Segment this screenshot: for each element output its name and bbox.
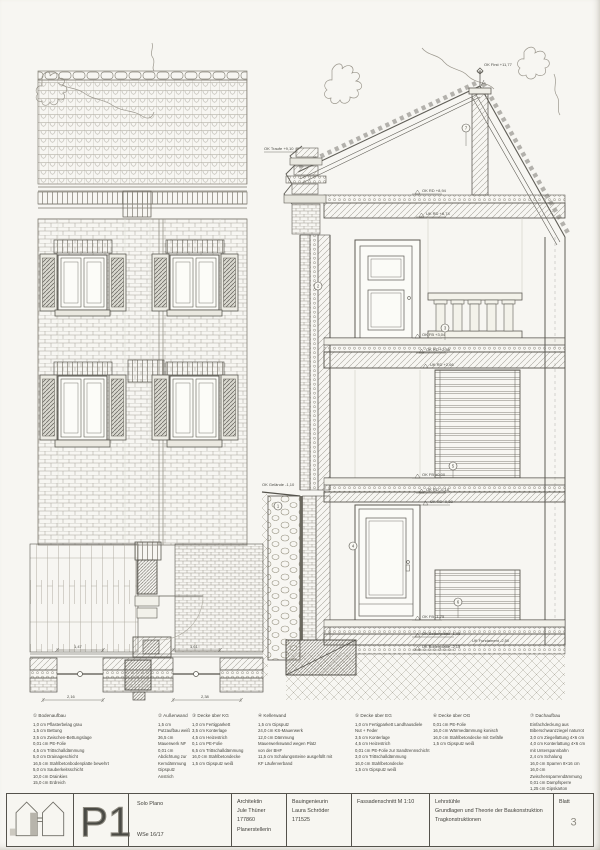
rubble-wall: [268, 496, 300, 660]
waterproofing: [300, 496, 303, 640]
svg-text:OK Traufe +9,10: OK Traufe +9,10: [264, 146, 294, 151]
slatted-window: [435, 570, 520, 625]
drawing-title-cell: Fassadenschnitt M 1:10: [351, 794, 429, 846]
sheet-label: Blatt: [559, 799, 570, 805]
legend-circled-number: ②: [158, 713, 162, 718]
svg-text:UK RD +8,74: UK RD +8,74: [426, 211, 450, 216]
panel-door: [355, 240, 420, 338]
legend-column-title: Decke über OG: [438, 713, 470, 718]
legend-column-title: Außenwand: [163, 713, 188, 718]
legend-column-1: ① Bodenaufbau 1,0 cm Pflasterbelag grau …: [33, 713, 151, 786]
project-name: Solo Plano: [137, 800, 223, 809]
project-code: P1: [80, 798, 131, 845]
tree-sketch: [324, 47, 560, 115]
sheet-number: 3: [570, 813, 576, 832]
svg-text:OK RD +8,94: OK RD +8,94: [422, 188, 447, 193]
svg-text:2,16: 2,16: [67, 694, 76, 699]
legend-column-title: Bodenaufbau: [38, 713, 65, 718]
chimney: [472, 94, 488, 195]
legend-column-3: ③ Decke über KG 1,0 cm Fertigparkett 3,5…: [192, 713, 254, 767]
svg-text:UK RD -0,38: UK RD -0,38: [430, 499, 453, 504]
legend-rows: 1,0 cm Pflasterbelag grau 1,5 cm Bettung…: [33, 722, 151, 786]
svg-text:1,61: 1,61: [190, 644, 199, 649]
legend-column-title: Kellerwand: [263, 713, 286, 718]
svg-text:OK FB +3,04: OK FB +3,04: [422, 332, 446, 337]
right-wall-edge: [545, 237, 565, 645]
svg-text:OK First +11,77: OK First +11,77: [484, 62, 513, 67]
legend-column-4: ④ Kellerwand 1,5 cm Gipsputz 24,0 cm KS-…: [258, 713, 353, 767]
project-name-cell: Solo Plano WSe 16/17: [128, 794, 231, 846]
legend-circled-number: ⑦: [530, 713, 534, 718]
project-code-cell: P1: [73, 794, 128, 846]
legend-rows: 1,5 cm Gipsputz 24,0 cm KS-Mauerwerk 12,…: [258, 722, 353, 767]
window: [152, 362, 238, 447]
glazed-door: [355, 505, 420, 620]
legend-rows: 1,5 cm Putzaufbau weiß 36,5 cm Mauerwerk…: [158, 722, 191, 780]
masonry-pier: [220, 658, 263, 692]
svg-text:OK Gelände -1,10: OK Gelände -1,10: [262, 482, 295, 487]
title-block-logo-cell: [7, 794, 73, 846]
svg-text:OK RD -0,18: OK RD -0,18: [426, 487, 450, 492]
svg-text:OK Bodenplatte -1,95: OK Bodenplatte -1,95: [422, 631, 461, 636]
layer-legend: ① Bodenaufbau 1,0 cm Pflasterbelag grau …: [0, 713, 600, 793]
svg-text:1,47: 1,47: [74, 644, 83, 649]
facade-roof-tiles: [38, 71, 247, 184]
detail-section-strip: [30, 654, 263, 700]
engineer-cell: Bauingenieurin Laura Schröder 171525: [286, 794, 351, 846]
brick-paving: [175, 544, 263, 652]
legend-rows: 1,0 cm Fertigparkett 3,5 cm Konterlage 4…: [192, 722, 254, 767]
legend-rows: 1,0 cm Fertigparkett Landhausdiele Nut +…: [355, 722, 430, 774]
legend-circled-number: ⑤: [355, 713, 359, 718]
legend-circled-number: ③: [192, 713, 196, 718]
window: [40, 362, 126, 447]
eave-cornice-detail: [284, 146, 326, 234]
plan-detail-drawing: 1,47 1,61 2,16 2,38: [25, 540, 270, 710]
facade-section-drawing: OK First +11,77 OK Traufe +9,10 OK RD +8…: [262, 40, 582, 710]
sheet-number-cell: Blatt 3: [553, 794, 593, 846]
chimney-cap: [469, 88, 491, 94]
balustrade: [428, 218, 522, 338]
masonry-pier: [103, 658, 173, 700]
title-block: P1 Solo Plano WSe 16/17 Architektin Jule…: [6, 793, 594, 847]
legend-column-6: ⑥ Decke über OG 0,01 cm PE-Folie 16,0 cm…: [433, 713, 525, 748]
detail-plan: [30, 542, 263, 657]
legend-circled-number: ⑥: [433, 713, 437, 718]
legend-column-title: Decke über KG: [197, 713, 228, 718]
svg-text:UK Fundament -2,50: UK Fundament -2,50: [472, 638, 510, 643]
legend-column-title: Decke über EG: [360, 713, 391, 718]
legend-rows: 0,01 cm PE-Folie 16,0 cm Wärmedämmung ko…: [433, 722, 525, 748]
house-logo: [9, 796, 69, 840]
svg-text:OK FB ±0,00: OK FB ±0,00: [422, 472, 446, 477]
legend-column-title: Dachaufbau: [535, 713, 560, 718]
legend-column-5: ⑤ Decke über EG 1,0 cm Fertigparkett Lan…: [355, 713, 430, 774]
facade-elevation-drawing: [30, 35, 255, 547]
legend-circled-number: ①: [33, 713, 37, 718]
legend-circled-number: ④: [258, 713, 262, 718]
floorboards: [30, 544, 138, 652]
facade-cornice: [38, 187, 247, 219]
masonry-pier: [30, 658, 57, 692]
svg-text:UK RD +2,66: UK RD +2,66: [430, 362, 454, 367]
svg-text:OK RD +2,86: OK RD +2,86: [426, 347, 451, 352]
chairs-cell: Lehrstühle Grundlagen und Theorie der Ba…: [429, 794, 553, 846]
scanned-drawing-sheet: OK First +11,77 OK Traufe +9,10 OK RD +8…: [0, 0, 600, 850]
architect-cell: Architektin Jule Thüner 177860 Planerste…: [231, 794, 286, 846]
svg-text:OK FB -1,75: OK FB -1,75: [422, 614, 445, 619]
slatted-shutter: [355, 370, 520, 478]
legend-column-2: ② Außenwand 1,5 cm Putzaufbau weiß 36,5 …: [158, 713, 191, 780]
legend-column-7: ⑦ Dachaufbau Einfachdeckung aus Bibersch…: [530, 713, 592, 806]
svg-text:UK Bodenplatte -2,15: UK Bodenplatte -2,15: [422, 644, 461, 649]
semester: WSe 16/17: [137, 831, 223, 840]
wall-pier: [137, 560, 157, 594]
svg-text:2,38: 2,38: [201, 694, 210, 699]
